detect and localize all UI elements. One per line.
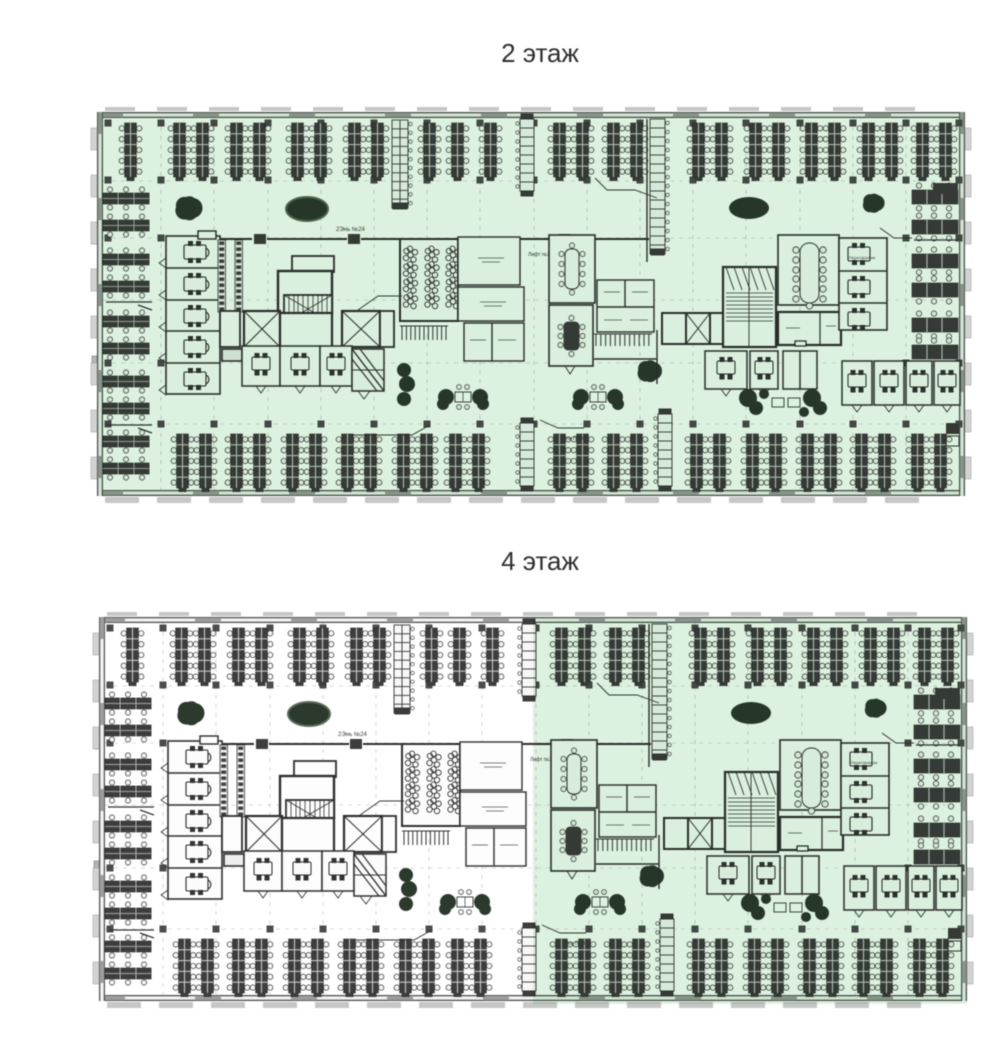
svg-text:2Энь №24: 2Энь №24 <box>338 731 368 738</box>
svg-text:4 этаж: 4 этаж <box>501 546 579 576</box>
svg-text:2 этаж: 2 этаж <box>501 38 579 68</box>
